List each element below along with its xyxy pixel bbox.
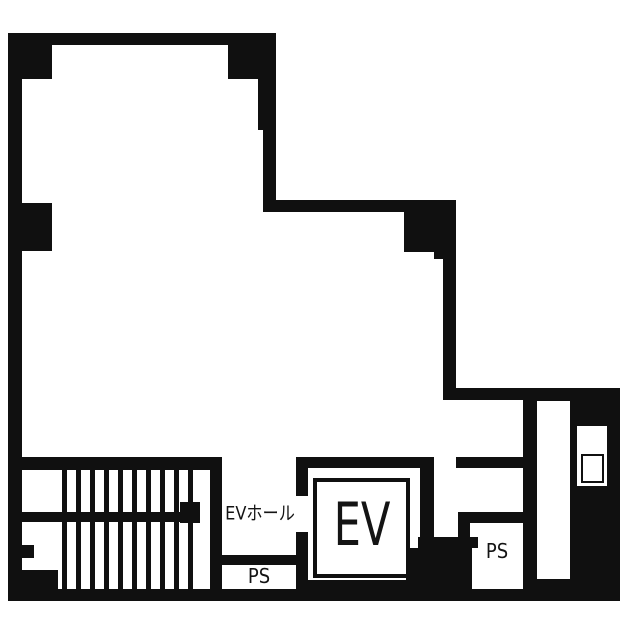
ev-hall-label: EVホール — [225, 505, 295, 524]
wall-stairs-top — [14, 457, 222, 470]
stair-tread — [160, 470, 165, 589]
wall-mid-vertical — [443, 252, 456, 392]
wall-mid-corner-block — [404, 207, 456, 252]
pipe-shaft-right-label: PS — [486, 541, 508, 561]
stair-tread — [118, 470, 123, 589]
wall-ps-right-top — [458, 512, 530, 523]
wall-left-bump — [8, 545, 34, 558]
tall-utility-room — [537, 401, 570, 579]
stair-rail-cap — [180, 502, 200, 523]
elevator-label: EV — [334, 495, 391, 555]
stair-tread — [90, 470, 95, 589]
wall-left — [8, 33, 22, 601]
wall-shaft-top — [298, 457, 434, 468]
stair-tread — [146, 470, 151, 589]
stair-tread — [104, 470, 109, 589]
wall-stairs-right — [210, 457, 222, 589]
wall-shaft-bottom — [296, 580, 448, 601]
pipe-shaft-left-label: PS — [248, 566, 270, 586]
wall-wing-upper — [456, 457, 530, 468]
wall-hall-door-stub-upper — [296, 457, 308, 496]
floor-plan-canvas: EVホール EV PS PS — [0, 0, 630, 630]
stair-tread — [76, 470, 81, 589]
stair-center-rail — [22, 512, 186, 522]
wall-shaft-right — [420, 468, 434, 548]
stair-tread — [62, 470, 67, 589]
wall-step-strip-lower — [263, 130, 276, 207]
wall-step-strip-upper — [258, 45, 276, 130]
stair-tread — [132, 470, 137, 589]
stair-tread — [174, 470, 179, 589]
stair-tread — [188, 470, 193, 589]
equipment-box — [581, 454, 604, 483]
wall-left-column — [8, 203, 52, 251]
wall-ps-right-stub — [458, 523, 470, 543]
